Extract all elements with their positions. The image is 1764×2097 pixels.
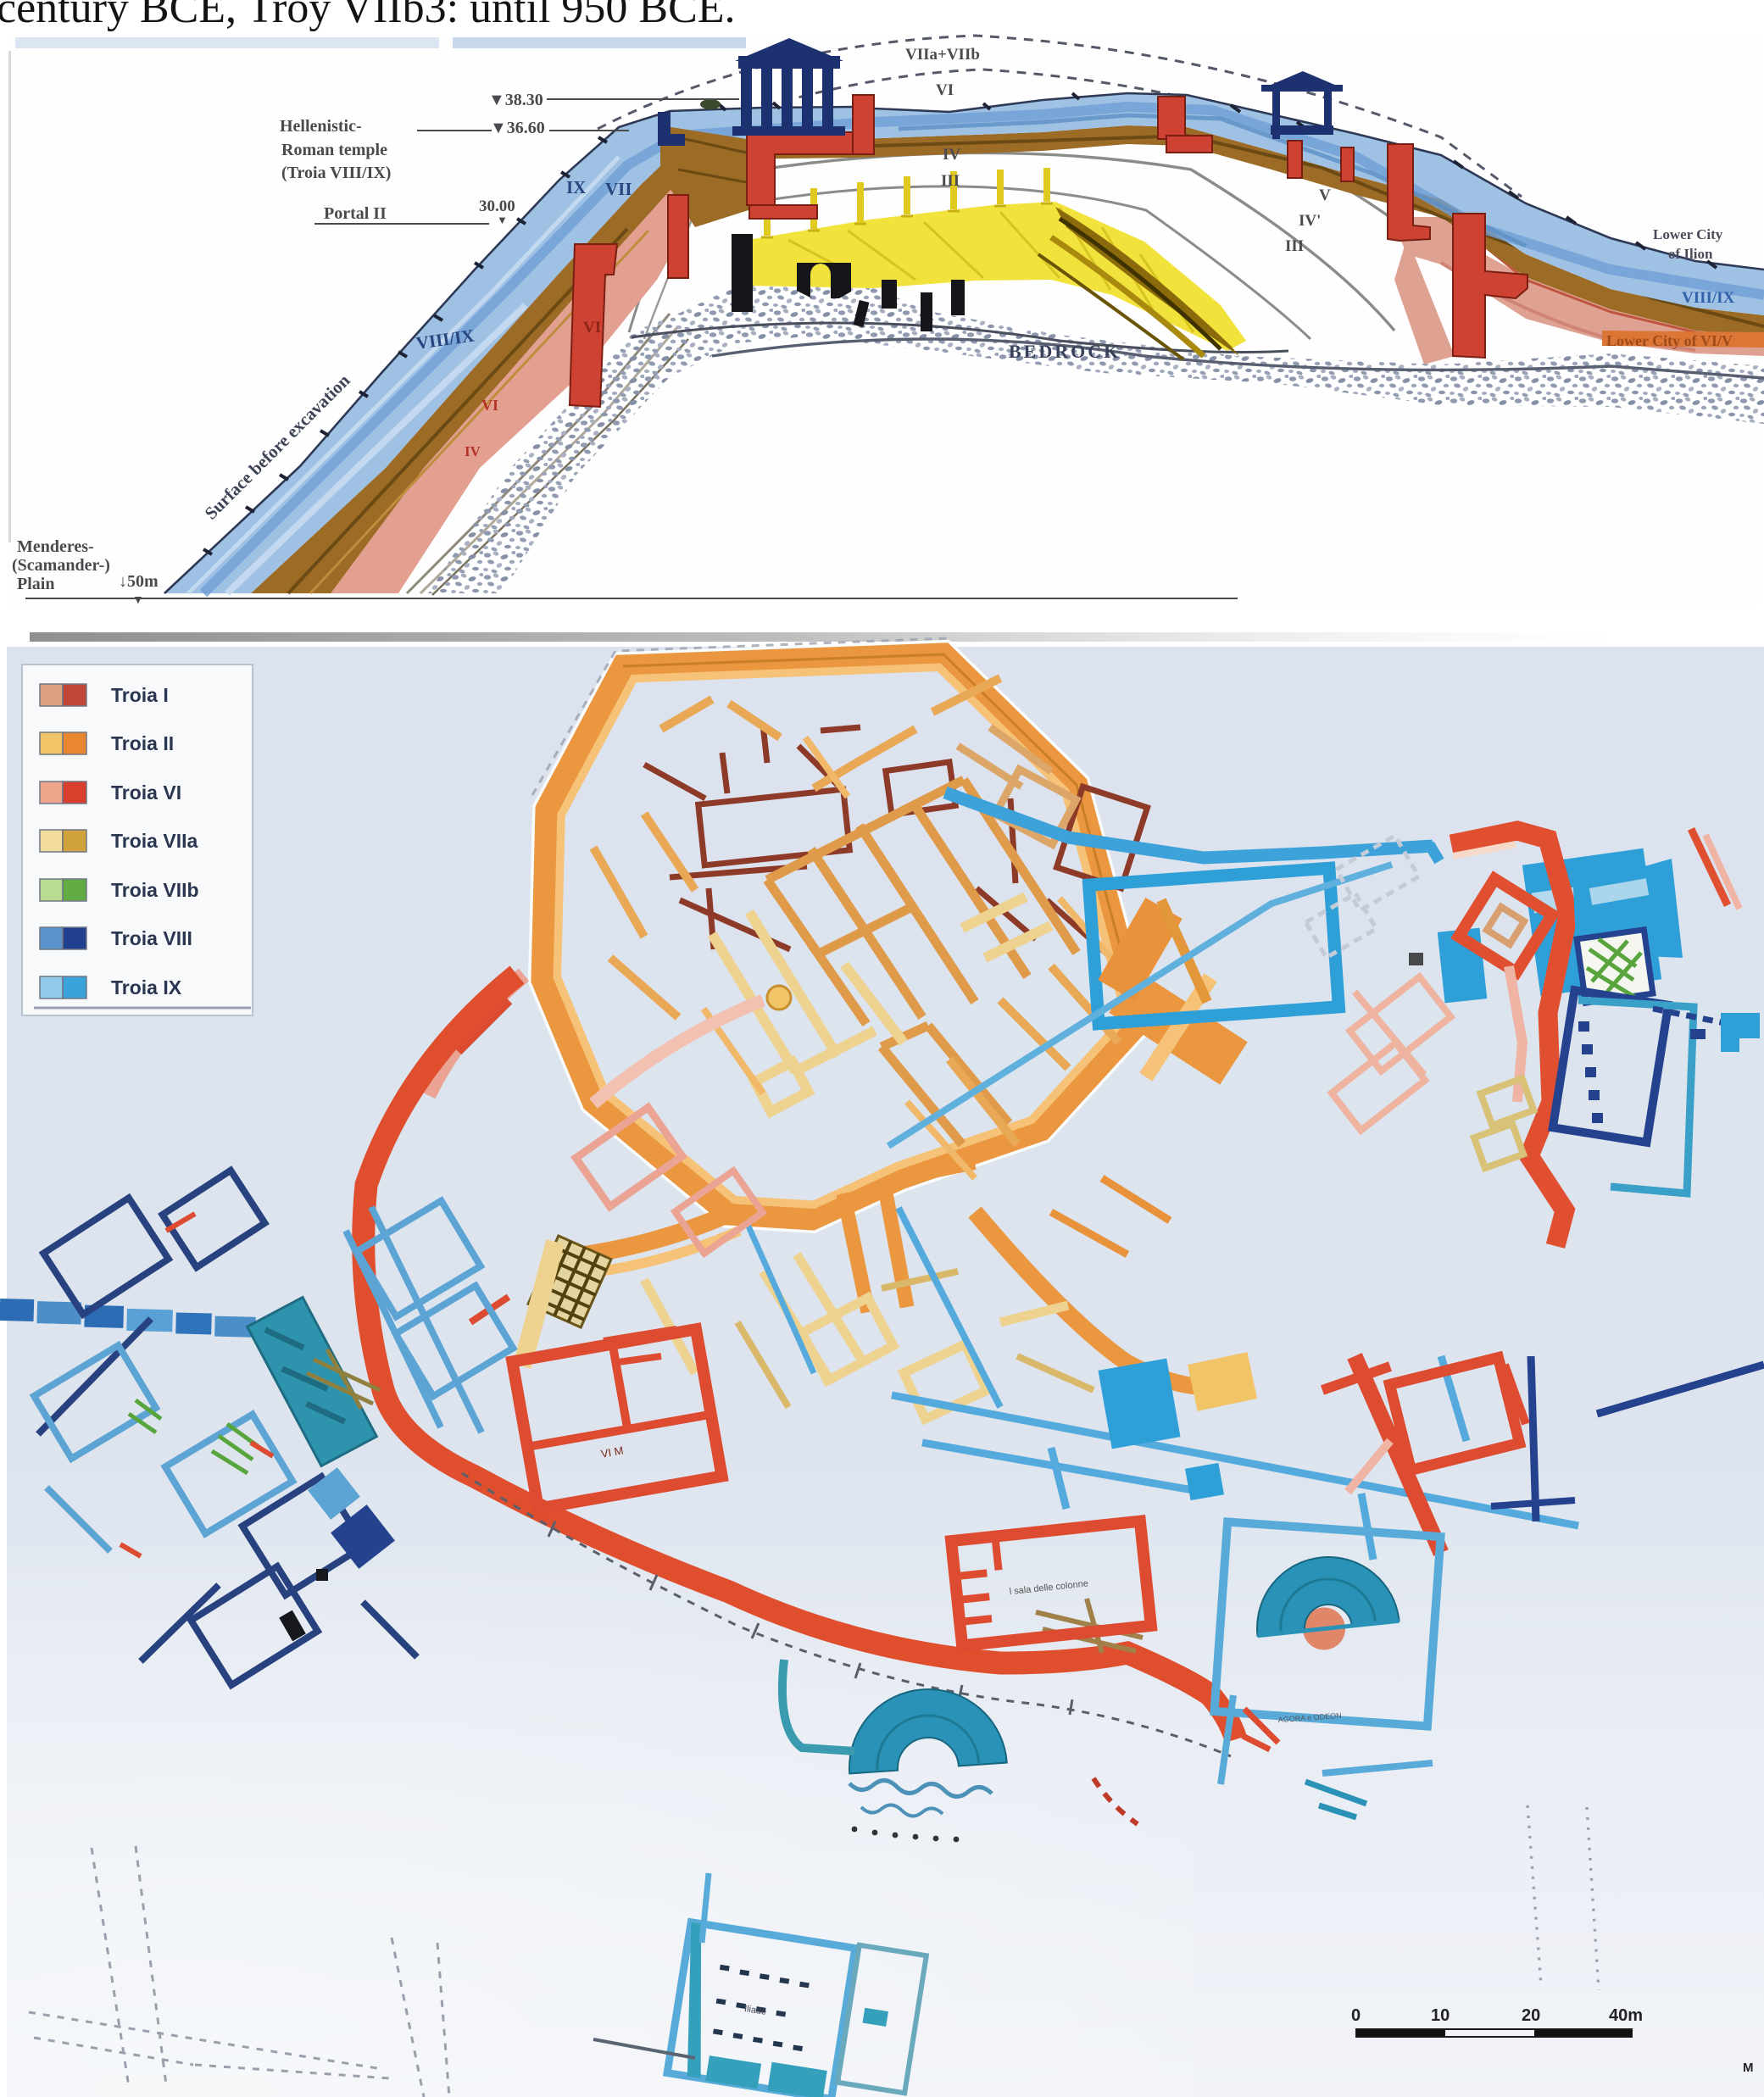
svg-text:VI: VI <box>936 81 954 99</box>
svg-text:VI: VI <box>583 319 601 337</box>
svg-text:↓50m: ↓50m <box>119 572 159 591</box>
svg-text:VIII/IX: VIII/IX <box>1682 289 1735 307</box>
svg-text:Plain: Plain <box>17 575 54 593</box>
svg-text:▼: ▼ <box>132 594 144 607</box>
svg-text:century BCE, Troy VIIb3: until: century BCE, Troy VIIb3: until 950 BCE. <box>0 0 736 32</box>
svg-text:Troia VIIa: Troia VIIa <box>111 830 198 852</box>
svg-text:Troia I: Troia I <box>111 684 169 706</box>
svg-text:(Scamander-): (Scamander-) <box>12 556 110 575</box>
svg-text:Troia II: Troia II <box>111 732 174 754</box>
svg-text:Portal II: Portal II <box>324 204 387 223</box>
svg-text:V: V <box>1319 186 1331 204</box>
svg-text:Troia VIII: Troia VIII <box>111 927 192 949</box>
svg-text:III: III <box>1285 237 1304 255</box>
svg-text:Hellenistic-: Hellenistic- <box>280 117 362 136</box>
svg-text:40m: 40m <box>1609 2006 1643 2025</box>
svg-text:(Troia VIII/IX): (Troia VIII/IX) <box>281 164 391 182</box>
svg-text:0: 0 <box>1351 2006 1361 2025</box>
svg-text:IX: IX <box>566 177 586 197</box>
svg-text:VIIa+VIIb: VIIa+VIIb <box>905 46 980 64</box>
svg-text:Troia VI: Troia VI <box>111 782 181 804</box>
svg-text:of Ilion: of Ilion <box>1668 246 1713 262</box>
svg-text:10: 10 <box>1431 2006 1450 2025</box>
svg-text:Lower City of VI/V: Lower City of VI/V <box>1606 332 1733 349</box>
svg-text:VII: VII <box>605 179 632 199</box>
svg-text:VI: VI <box>481 397 498 414</box>
svg-text:IV': IV' <box>1299 212 1321 230</box>
svg-text:Lower City: Lower City <box>1653 226 1723 242</box>
svg-text:▼38.30: ▼38.30 <box>488 91 543 109</box>
svg-text:20: 20 <box>1522 2006 1540 2025</box>
svg-text:Menderes-: Menderes- <box>17 537 94 556</box>
svg-text:Troia VIIb: Troia VIIb <box>111 879 199 901</box>
svg-text:▼36.60: ▼36.60 <box>490 119 545 137</box>
svg-text:30.00: 30.00 <box>479 197 515 215</box>
svg-text:IV: IV <box>943 146 960 164</box>
svg-text:III: III <box>941 172 960 190</box>
svg-text:IV: IV <box>465 443 481 459</box>
svg-text:M: M <box>1743 2061 1754 2075</box>
svg-text:Roman temple: Roman temple <box>281 141 387 159</box>
svg-text:BEDROCK: BEDROCK <box>1009 341 1121 362</box>
svg-text:▼: ▼ <box>497 214 508 226</box>
svg-text:Troia IX: Troia IX <box>111 976 182 998</box>
